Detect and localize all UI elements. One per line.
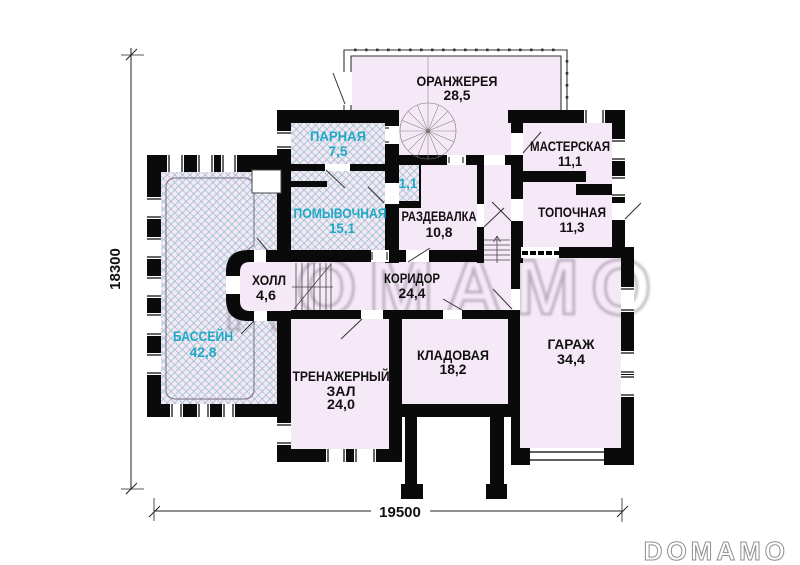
svg-text:БАССЕЙН: БАССЕЙН: [173, 329, 233, 344]
svg-text:7,5: 7,5: [329, 144, 348, 159]
svg-text:МАСТЕРСКАЯ: МАСТЕРСКАЯ: [530, 139, 610, 154]
svg-text:КОРИДОР: КОРИДОР: [384, 271, 440, 286]
svg-text:ПАРНАЯ: ПАРНАЯ: [310, 129, 366, 144]
svg-text:1,1: 1,1: [399, 176, 418, 191]
svg-text:ГАРАЖ: ГАРАЖ: [548, 337, 596, 352]
svg-text:19500: 19500: [379, 504, 421, 521]
svg-text:24,0: 24,0: [327, 397, 355, 412]
svg-text:11,1: 11,1: [558, 154, 582, 169]
svg-text:15,1: 15,1: [329, 221, 355, 236]
svg-text:42,8: 42,8: [190, 345, 217, 360]
svg-text:РАЗДЕВАЛКА: РАЗДЕВАЛКА: [402, 209, 477, 224]
svg-text:ПОМЫВОЧНАЯ: ПОМЫВОЧНАЯ: [294, 206, 387, 221]
svg-text:КЛАДОВАЯ: КЛАДОВАЯ: [417, 348, 489, 363]
svg-text:18300: 18300: [107, 248, 124, 290]
svg-text:11,3: 11,3: [560, 220, 585, 235]
svg-text:24,4: 24,4: [399, 286, 426, 301]
svg-text:ОРАНЖЕРЕЯ: ОРАНЖЕРЕЯ: [417, 74, 498, 89]
svg-text:18,2: 18,2: [440, 362, 467, 377]
svg-text:28,5: 28,5: [444, 88, 471, 103]
svg-text:DOMAMO: DOMAMO: [644, 536, 789, 565]
svg-text:ТОПОЧНАЯ: ТОПОЧНАЯ: [538, 205, 606, 220]
svg-text:4,6: 4,6: [256, 288, 277, 303]
svg-text:ХОЛЛ: ХОЛЛ: [252, 273, 286, 288]
svg-text:ТРЕНАЖЕРНЫЙ: ТРЕНАЖЕРНЫЙ: [293, 369, 390, 384]
svg-text:34,4: 34,4: [557, 352, 586, 367]
svg-text:10,8: 10,8: [426, 225, 453, 240]
